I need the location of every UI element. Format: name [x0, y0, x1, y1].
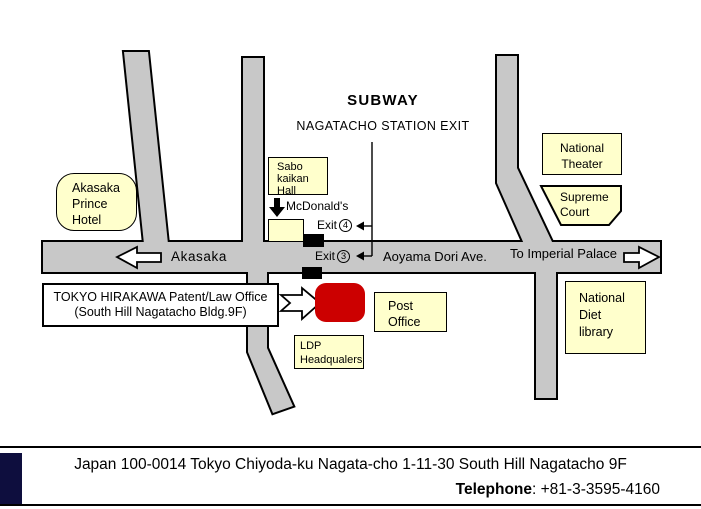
exit4-arrow-icon: [356, 222, 364, 231]
office-building-name: (South Hill Nagatacho Bldg.9F): [44, 305, 277, 320]
exit3-number-badge: 3: [337, 250, 350, 263]
office-building-marker: [315, 283, 365, 322]
exit4-number-badge: 4: [339, 219, 352, 232]
down-arrow-icon: [269, 198, 285, 217]
exit4-label: Exit 4: [317, 218, 352, 232]
subway-subtitle: NAGATACHO STATION EXIT: [255, 119, 511, 133]
exit4-text: Exit: [317, 218, 337, 232]
road-label-to-imperial-palace: To Imperial Palace: [510, 246, 617, 261]
exit3-label: Exit 3: [315, 249, 350, 263]
footer-top-rule: [0, 446, 701, 448]
national-theater-label: National Theater: [542, 133, 622, 175]
national-diet-library-label: National Diet library: [565, 281, 646, 354]
exit3-text: Exit: [315, 249, 335, 263]
footer-telephone: Telephone: +81-3-3595-4160: [456, 481, 660, 499]
akasaka-prince-hotel-label: Akasaka Prince Hotel: [56, 173, 137, 231]
supreme-court-label: Supreme Court: [560, 190, 609, 220]
subway-title: SUBWAY: [300, 92, 466, 109]
road-label-akasaka: Akasaka: [171, 249, 227, 264]
office-callout: TOKYO HIRAKAWA Patent/Law Office (South …: [42, 283, 279, 327]
telephone-number: : +81-3-3595-4160: [532, 481, 660, 498]
access-map: SUBWAY NAGATACHO STATION EXIT Akasaka Pr…: [0, 0, 701, 509]
telephone-label: Telephone: [456, 481, 532, 498]
mcdonalds-building: [268, 219, 304, 242]
road-label-aoyama-dori: Aoyama Dori Ave.: [383, 249, 487, 264]
office-name: TOKYO HIRAKAWA Patent/Law Office: [44, 290, 277, 305]
exit4-marker: [303, 234, 324, 247]
sabo-kaikan-hall-label: Sabo kaikan Hall: [268, 157, 328, 195]
footer-bottom-rule: [0, 504, 701, 506]
ldp-headquarters-label: LDP Headqualers: [294, 335, 364, 369]
exit3-marker: [302, 267, 322, 279]
post-office-label: Post Office: [374, 292, 447, 332]
footer-address: Japan 100-0014 Tokyo Chiyoda-ku Nagata-c…: [0, 456, 701, 474]
mcdonalds-label: McDonald's: [286, 199, 348, 213]
